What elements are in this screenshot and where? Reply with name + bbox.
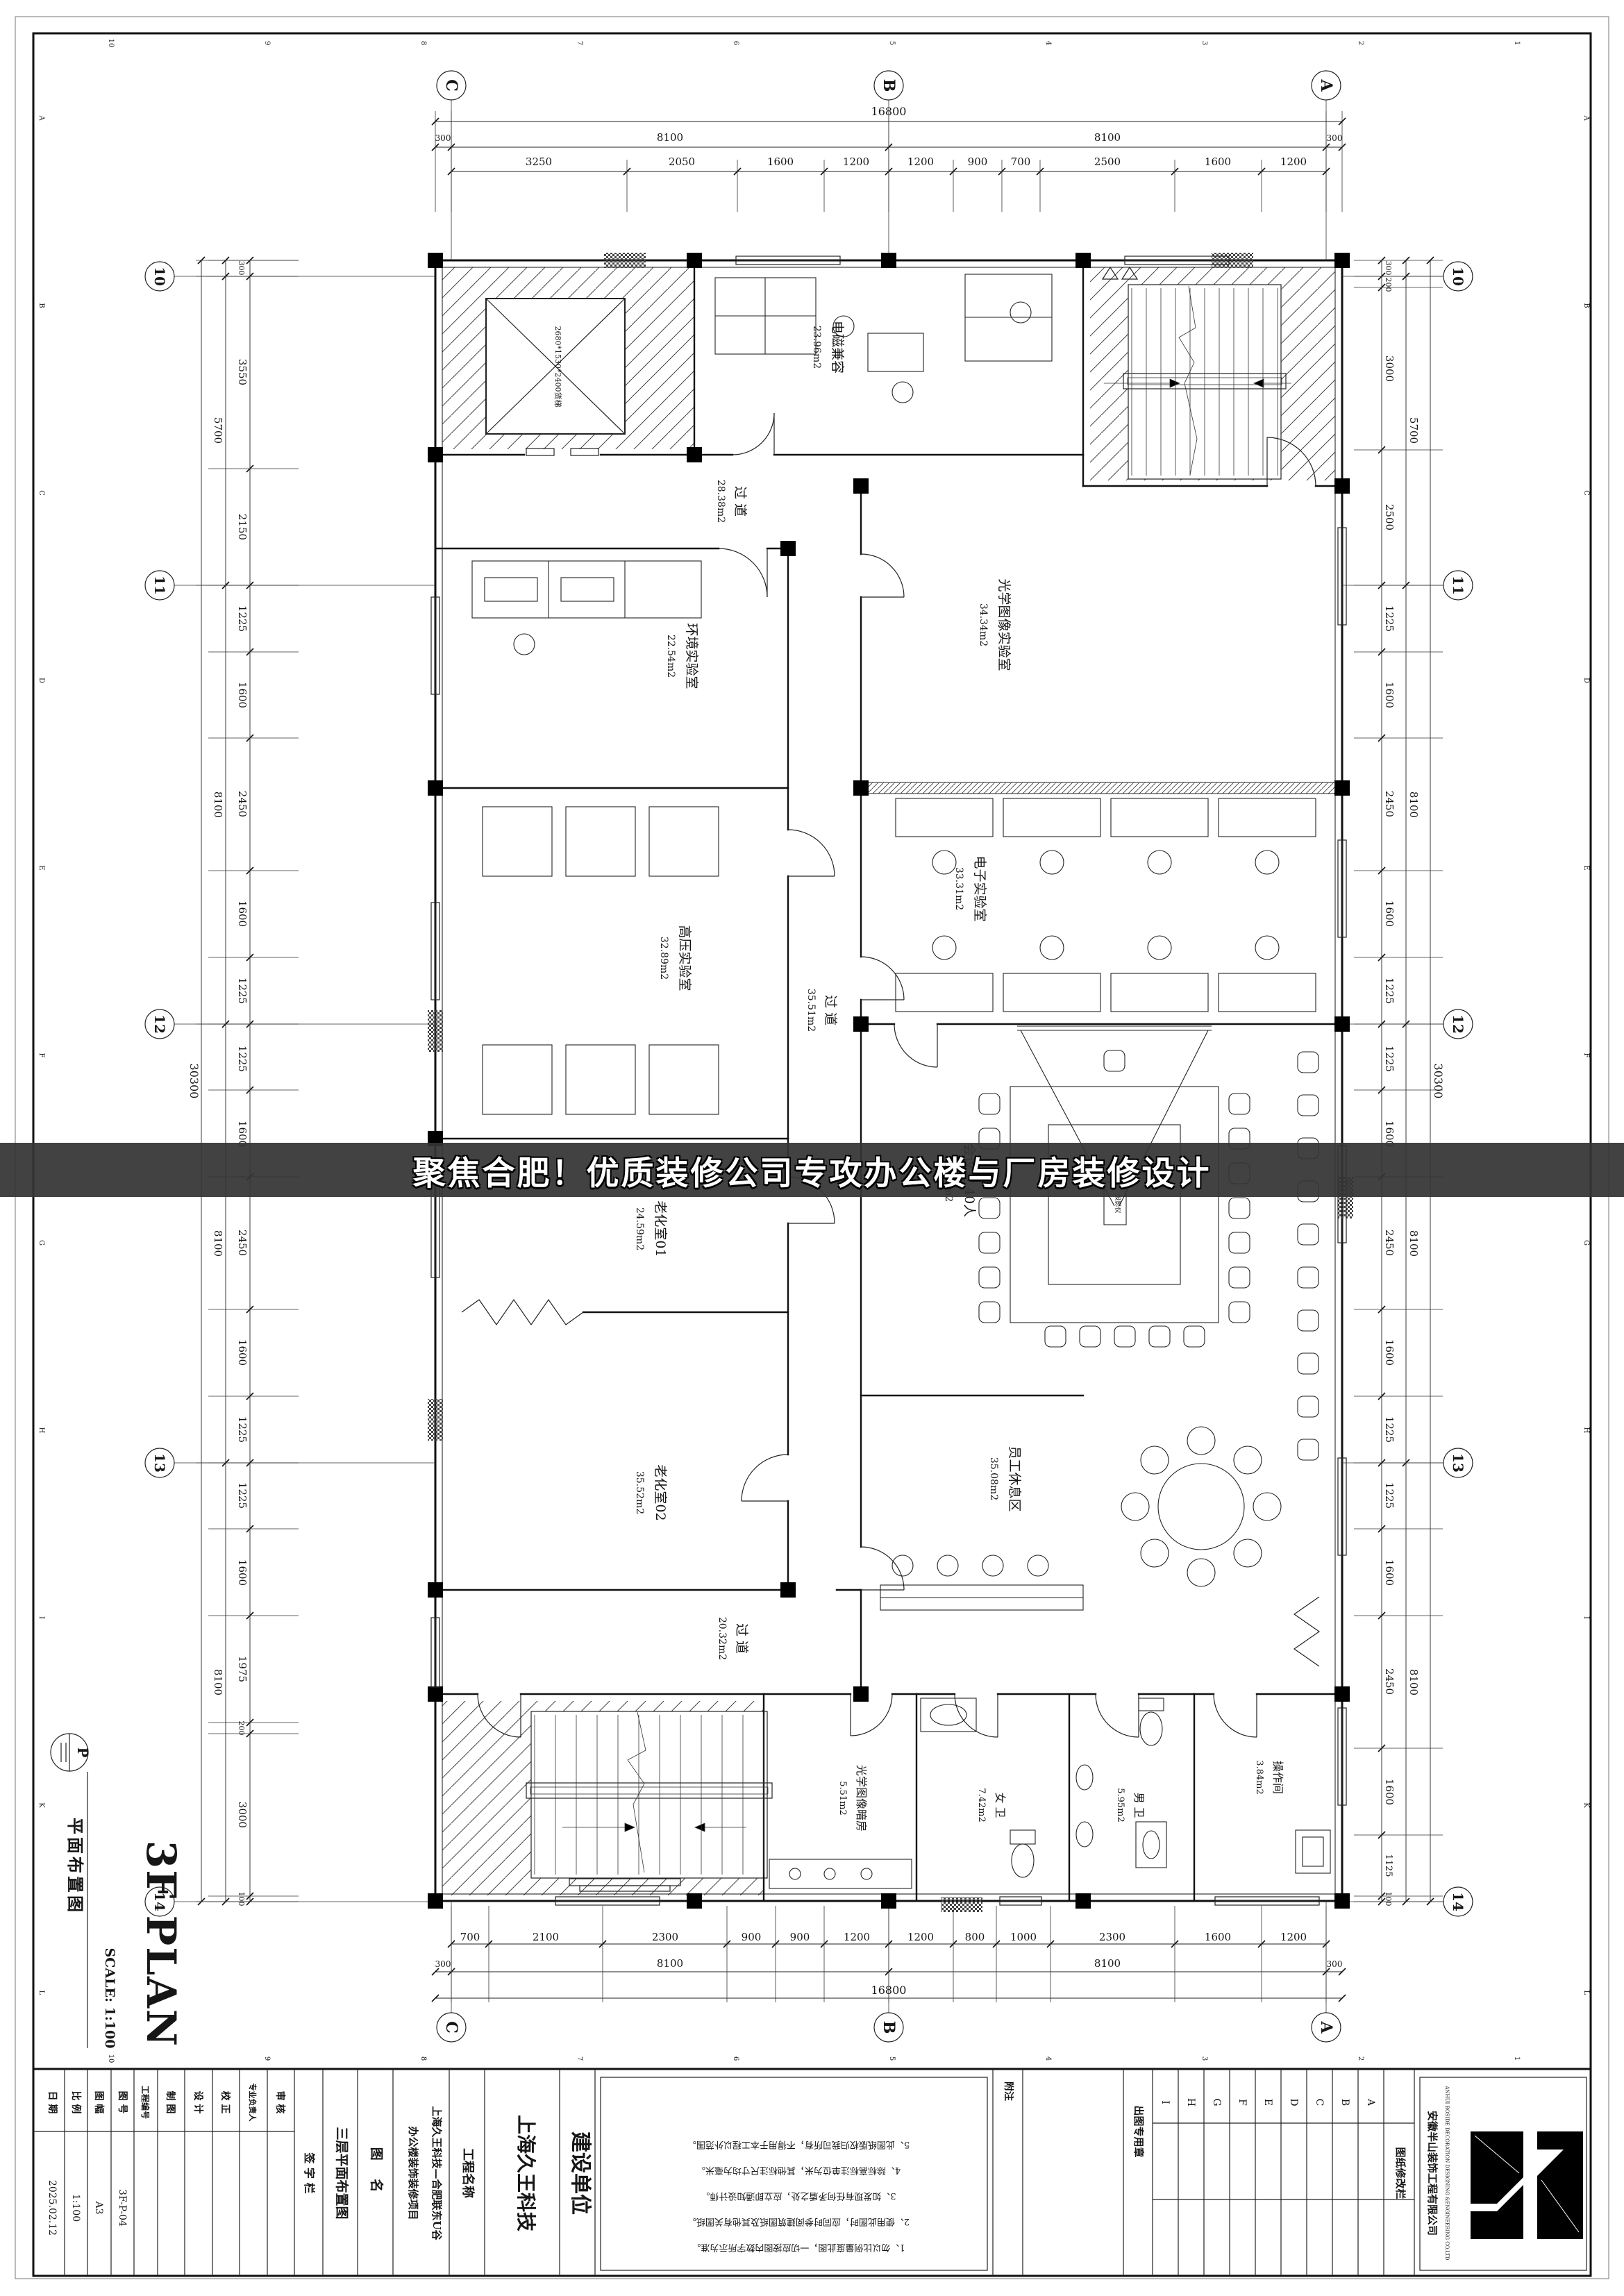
column <box>1334 780 1350 796</box>
dim-bottom-sub: 1200 <box>907 1931 934 1943</box>
zone-mark: K <box>37 1802 45 1808</box>
room-area: 34.34m2 <box>978 603 989 646</box>
dim-left-sub: 2450 <box>236 791 249 817</box>
chair <box>1298 1353 1319 1374</box>
dim-left-major: 5700 <box>212 417 224 444</box>
dim-left-sub: 3000 <box>236 1802 249 1828</box>
watermark-banner: 聚焦合肥！优质装修公司专攻办公楼与厂房装修设计 <box>0 1143 1624 1197</box>
zone-mark: 5 <box>888 41 896 45</box>
room-area: 24.59m2 <box>634 1207 645 1250</box>
zone-mark: I <box>37 1616 45 1619</box>
grid-bubble-label: 13 <box>151 1453 168 1473</box>
room-name: 光学图像实验室 <box>996 578 1012 671</box>
chair <box>1184 1326 1205 1347</box>
plan-title-en: 3F PLAN <box>137 1841 185 2047</box>
zone-mark: 8 <box>419 41 427 45</box>
dim-left-major: 8100 <box>212 791 224 818</box>
dim-left-sub: 1225 <box>236 1416 249 1443</box>
dim-right-sub: 2500 <box>1383 504 1396 530</box>
chair <box>1148 936 1171 960</box>
grid-bubble-label: 11 <box>1450 576 1466 595</box>
zone-mark: H <box>37 1427 45 1434</box>
stool <box>982 1555 1003 1576</box>
column <box>687 1893 702 1909</box>
dim-right-sub: 1600 <box>1383 1339 1396 1366</box>
room-area: 32.89m2 <box>658 937 669 980</box>
dim-left-total: 30300 <box>187 1064 201 1099</box>
zone-mark: E <box>1582 865 1590 870</box>
detail-symbol: P <box>74 1747 91 1757</box>
chair <box>1229 1267 1250 1288</box>
dim-top-major: 300 <box>1327 133 1343 143</box>
room-name: 过 道 <box>823 995 838 1025</box>
room-name: 电磁兼容 <box>830 321 845 374</box>
desk <box>1219 798 1316 837</box>
revision-letter: I <box>1160 2100 1171 2104</box>
dim-bottom-major: 300 <box>1327 1959 1343 1969</box>
room-name: 女 卫 <box>994 1792 1007 1818</box>
column <box>881 253 896 268</box>
chair <box>1045 1326 1066 1347</box>
titleblock-label: 设 计 <box>192 2091 204 2114</box>
titleblock-value: 三层平面布置图 <box>334 2127 350 2219</box>
grid-bubble-label: 10 <box>1450 267 1466 286</box>
zone-mark: F <box>37 1053 45 1058</box>
dim-bottom-sub: 800 <box>965 1931 985 1943</box>
titleblock-value: 上海久王科技—合肥联东U谷 <box>430 2106 443 2240</box>
column <box>428 447 443 462</box>
zone-mark: 10 <box>107 2054 115 2063</box>
plan-title-cn: 平面布置图 <box>65 1818 85 1915</box>
dim-left-sub: 1600 <box>236 682 249 708</box>
dim-top-sub: 1200 <box>907 156 934 168</box>
chair <box>1298 1267 1319 1288</box>
dim-bottom-sub: 2300 <box>652 1931 678 1943</box>
revision-letter: C <box>1314 2099 1325 2106</box>
company-name: 安徽半山装饰工程有限公司 <box>1426 2111 1439 2236</box>
column <box>687 253 702 268</box>
revision-letter: F <box>1237 2099 1248 2106</box>
dim-left-sub: 1975 <box>236 1656 249 1682</box>
grid-bubble-label: B <box>880 2021 898 2034</box>
titleblock-value: 上海久王科技 <box>514 2115 537 2231</box>
dim-top-sub: 900 <box>968 156 988 168</box>
column <box>428 1582 443 1598</box>
notes-line: 1、勿以比例量度此图，一切应按图内数字所示为准。 <box>692 2242 905 2253</box>
notes-line: 3、如发现有任何矛盾之处，应立即通知设计师。 <box>701 2190 896 2202</box>
zone-mark: H <box>1582 1427 1590 1434</box>
chair <box>1187 1559 1215 1586</box>
zone-mark: 2 <box>1357 2056 1364 2061</box>
equipment-label: 投影仪 <box>1114 1194 1122 1213</box>
grid-bubble-label: 12 <box>151 1014 168 1034</box>
titleblock-label: 附注 <box>1003 2081 1014 2101</box>
chair <box>1234 1539 1262 1567</box>
chair <box>1229 1302 1250 1323</box>
column <box>428 780 443 796</box>
stool <box>892 1555 913 1576</box>
column <box>428 253 443 268</box>
titleblock-label: 图 幅 <box>93 2091 105 2114</box>
dim-bottom-sub: 1200 <box>844 1931 870 1943</box>
zone-mark: 4 <box>1044 2056 1052 2061</box>
dim-top-major: 8100 <box>1094 131 1121 144</box>
dim-left-sub: 1225 <box>236 978 249 1004</box>
chair <box>1234 1446 1262 1474</box>
column <box>881 1893 896 1909</box>
chair <box>1255 850 1279 874</box>
room-area: 28.38m2 <box>715 480 726 523</box>
titleblock-value: 办公楼装饰装修项目 <box>407 2126 419 2220</box>
chair <box>1229 1198 1250 1218</box>
equipment-label: 2680*1530*2400货梯 <box>553 326 563 408</box>
revision-letter: E <box>1262 2099 1273 2106</box>
dim-left-sub: 1225 <box>236 1046 249 1072</box>
dim-left-sub: 1225 <box>236 1482 249 1509</box>
room-area: 20.32m2 <box>717 1617 728 1660</box>
dim-bottom-sub: 900 <box>790 1931 810 1943</box>
chair <box>979 1302 1000 1323</box>
hatched-areas <box>442 267 1335 1895</box>
titleblock-label: 图 号 <box>117 2091 128 2114</box>
zone-mark: A <box>37 115 45 121</box>
column <box>780 541 796 556</box>
titleblock-label: 制 图 <box>165 2091 176 2114</box>
titleblock-label: 图 名 <box>369 2147 385 2199</box>
titleblock-value: 1:100 <box>70 2194 81 2222</box>
chair <box>932 936 956 960</box>
furniture <box>472 274 1330 1888</box>
room-name: 操作间 <box>1271 1761 1284 1794</box>
revision-letter: B <box>1339 2099 1350 2106</box>
titleblock-label: 专业负责人 <box>248 2084 258 2122</box>
dim-right-sub: 2450 <box>1383 791 1396 817</box>
dim-left-sub: 3550 <box>236 359 249 385</box>
dim-left-sub: 2150 <box>236 514 249 540</box>
zone-mark: F <box>1582 1053 1590 1058</box>
round-table <box>1158 1464 1244 1550</box>
titleblock-value: 2025.02.12 <box>47 2180 58 2236</box>
column <box>853 1686 869 1702</box>
dim-left-sub: 1600 <box>236 1559 249 1586</box>
dim-bottom-sub: 900 <box>742 1931 762 1943</box>
column <box>428 1686 443 1702</box>
zone-mark: C <box>37 490 45 496</box>
chair <box>1104 1050 1125 1071</box>
column <box>1334 478 1350 494</box>
chair <box>1141 1539 1169 1567</box>
zone-mark: 3 <box>1200 2056 1208 2061</box>
zone-mark: 7 <box>576 2056 583 2061</box>
dim-right-sub: 1600 <box>1383 1559 1396 1586</box>
notes-line: 5、此图纸版权归我司所有，不得用于本工程以外范围。 <box>687 2139 910 2150</box>
dim-right-total: 30300 <box>1432 1064 1445 1099</box>
dim-right-sub: 100 <box>1384 1892 1393 1907</box>
plan-scale: SCALE: 1:100 <box>102 1948 117 2049</box>
zone-mark: 1 <box>1513 41 1521 45</box>
titleblock-label: 签 字 栏 <box>303 2152 316 2193</box>
dim-right-major: 8100 <box>1407 791 1420 818</box>
chair <box>1298 1052 1319 1073</box>
column <box>853 780 869 796</box>
column <box>1075 253 1091 268</box>
dim-left-sub: 300 <box>237 261 246 276</box>
room-area: 7.42m2 <box>976 1788 987 1822</box>
desk <box>1111 798 1208 837</box>
titleblock-value: 3F-P-04 <box>117 2189 128 2227</box>
zone-mark: L <box>1582 1991 1590 1995</box>
chair <box>1040 850 1064 874</box>
grid-bubble-label: 10 <box>151 267 168 286</box>
room-name: 高压实验室 <box>677 925 692 991</box>
zone-mark: L <box>37 1991 45 1995</box>
zone-mark: G <box>1582 1240 1590 1246</box>
zone-mark: 8 <box>419 2056 427 2061</box>
chair <box>1229 1093 1250 1114</box>
dim-left-major: 8100 <box>212 1230 224 1257</box>
column <box>687 447 702 462</box>
dim-top-sub: 1600 <box>1205 156 1231 168</box>
dim-bottom-sub: 1000 <box>1010 1931 1037 1943</box>
drawing-sheet: 聚焦合肥！优质装修公司专攻办公楼与厂房装修设计 <box>0 0 1624 2296</box>
chair <box>1229 1232 1250 1253</box>
dim-left-sub: 100 <box>237 1892 246 1907</box>
titleblock-label: 工程名称 <box>460 2148 476 2198</box>
dim-bottom-sub: 1600 <box>1205 1931 1231 1943</box>
notes-line: 4、除标高标注单位为米，其他标注尺寸均为毫米。 <box>696 2165 901 2176</box>
dim-left-sub: 200 <box>237 1721 246 1736</box>
revision-letter: G <box>1211 2098 1222 2106</box>
grid-bubble-label: 14 <box>1450 1892 1466 1911</box>
chair <box>1298 1439 1319 1460</box>
zone-mark: G <box>37 1240 45 1246</box>
dim-right-sub: 300 <box>1384 261 1393 276</box>
room-name: 员工休息区 <box>1007 1446 1022 1511</box>
room-area: 3.84m2 <box>1254 1760 1264 1795</box>
dim-right-major: 8100 <box>1407 1669 1420 1695</box>
dim-right-sub: 1225 <box>1383 1482 1396 1509</box>
chair <box>1298 1224 1319 1245</box>
column <box>780 1582 796 1598</box>
zone-mark: C <box>1582 490 1590 496</box>
chair <box>1298 1310 1319 1331</box>
room-name: 老化室01 <box>653 1200 668 1257</box>
column <box>1334 253 1350 268</box>
d im-bottom-sub: 2300 <box>1099 1931 1125 1943</box>
dim-right-sub: 1225 <box>1383 978 1396 1004</box>
grid-bubble-label: A <box>1317 2020 1335 2034</box>
revision-letter: A <box>1365 2098 1376 2106</box>
titleblock-value: A3 <box>93 2200 104 2214</box>
zone-mark: A <box>1582 115 1590 121</box>
dim-right-major: 5700 <box>1407 417 1420 444</box>
dim-bottom-major: 300 <box>435 1959 451 1969</box>
revision-letter: H <box>1185 2098 1196 2106</box>
chair <box>1121 1493 1149 1520</box>
zone-mark: K <box>1582 1802 1590 1808</box>
dim-right-sub: 2450 <box>1383 1230 1396 1256</box>
desk <box>896 798 993 837</box>
chair <box>979 1198 1000 1218</box>
stool <box>1028 1555 1048 1576</box>
dim-bottom-major: 8100 <box>657 1957 683 1970</box>
dim-left-sub: 1600 <box>236 900 249 927</box>
room-area: 35.51m2 <box>805 989 817 1032</box>
zone-mark: E <box>37 865 45 870</box>
dim-top-sub: 1200 <box>1280 156 1307 168</box>
zone-mark: D <box>1582 678 1590 683</box>
accordion-door <box>462 1300 583 1325</box>
notes-line: 2、使用此图时，应同时参阅建筑图纸及其他有关图纸。 <box>687 2216 910 2227</box>
walls <box>435 260 1342 1901</box>
dim-top-sub: 2050 <box>669 156 695 168</box>
company-name-en: ANHUI BOSIDE DECORATION DESIGNING &ENGIN… <box>1444 2085 1450 2260</box>
dim-right-sub: 1225 <box>1383 1046 1396 1072</box>
chair <box>1149 1326 1170 1347</box>
dim-top-sub: 3250 <box>526 156 552 168</box>
chair <box>979 1267 1000 1288</box>
titleblock-label: 校 正 <box>219 2091 231 2114</box>
dim-right-sub: 1600 <box>1383 1779 1396 1805</box>
chair <box>932 850 956 874</box>
dim-bottom-sub: 1200 <box>1280 1931 1307 1943</box>
room-area: 23.96m2 <box>811 326 822 369</box>
wall-blocks <box>428 253 1353 1912</box>
dim-left-sub: 1600 <box>236 1339 249 1366</box>
dim-top-sub: 700 <box>1011 156 1031 168</box>
zone-mark: 5 <box>888 2056 896 2061</box>
chair <box>1141 1446 1169 1474</box>
zone-mark: 9 <box>263 41 271 45</box>
room-area: 33.31m2 <box>953 867 964 910</box>
room-area: 35.08m2 <box>988 1457 999 1500</box>
dim-top-sub: 2500 <box>1094 156 1121 168</box>
chair <box>1298 1396 1319 1417</box>
room-name: 电子实验室 <box>972 855 987 921</box>
zone-mark: D <box>37 678 45 683</box>
room-area: 5.95m2 <box>1115 1788 1125 1822</box>
revision-letter: D <box>1288 2098 1299 2106</box>
room-area: 5.51m2 <box>837 1781 848 1816</box>
dim-right-sub: 1225 <box>1383 1416 1396 1443</box>
dim-bottom-major: 8100 <box>1094 1957 1121 1970</box>
zone-mark: 3 <box>1200 41 1208 45</box>
grid-bubble-label: A <box>1317 78 1335 92</box>
titleblock-label: 工程编号 <box>140 2086 151 2119</box>
dim-left-sub: 2450 <box>236 1230 249 1256</box>
dim-right-major: 8100 <box>1407 1230 1420 1257</box>
dim-bottom-sub: 700 <box>460 1931 480 1943</box>
dim-left-sub: 1225 <box>236 605 249 632</box>
zone-mark: 4 <box>1044 41 1052 45</box>
dim-top-total: 16800 <box>871 105 907 118</box>
column <box>1334 1016 1350 1032</box>
grid-bubble-label: C <box>442 79 460 92</box>
doors <box>462 413 1319 1737</box>
zone-mark: B <box>37 303 45 308</box>
dim-right-sub: 1600 <box>1383 682 1396 708</box>
grid-bubble-label: C <box>442 2021 460 2034</box>
dim-left-major: 8100 <box>212 1669 224 1695</box>
dim-right-sub: 1225 <box>1383 605 1396 632</box>
column <box>428 1893 443 1909</box>
chair <box>1040 936 1064 960</box>
titleblock-label: 出图专用章 <box>1132 2105 1145 2157</box>
chair <box>1298 1095 1319 1116</box>
dim-top-major: 300 <box>435 133 451 143</box>
desk <box>1219 973 1316 1012</box>
column <box>1075 1893 1091 1909</box>
room-name: 老化室02 <box>653 1464 668 1520</box>
titleblock-label: 图纸修改栏 <box>1394 2147 1407 2199</box>
room-name: 过 道 <box>733 486 748 517</box>
desk <box>1003 798 1100 837</box>
dim-top-major: 8100 <box>657 131 683 144</box>
chair <box>979 1093 1000 1114</box>
dim-top-sub: 1200 <box>843 156 869 168</box>
desk <box>1003 973 1100 1012</box>
dim-bottom-sub: 2100 <box>533 1931 559 1943</box>
grid-bubble-label: 12 <box>1450 1014 1466 1034</box>
zone-mark: 6 <box>732 41 739 45</box>
zone-mark: I <box>1582 1616 1590 1619</box>
dim-right-sub: 200 <box>1384 278 1393 292</box>
desk <box>896 973 993 1012</box>
column <box>1334 1893 1350 1909</box>
chair <box>1253 1493 1281 1520</box>
column <box>853 1016 869 1032</box>
chair <box>979 1232 1000 1253</box>
titleblock-label: 比 例 <box>70 2091 82 2114</box>
titleblock-label: 建设单位 <box>568 2131 592 2215</box>
room-name: 过 道 <box>734 1623 749 1654</box>
dim-bottom-total: 16800 <box>871 1984 907 1997</box>
zone-mark: 2 <box>1357 41 1364 45</box>
dim-right-sub: 1600 <box>1383 900 1396 927</box>
radiator-zigzag <box>1294 1597 1319 1666</box>
chair <box>1187 1427 1215 1455</box>
room-name: 男 卫 <box>1132 1792 1146 1818</box>
desk <box>1111 973 1208 1012</box>
zone-mark: 7 <box>576 41 583 45</box>
company-logo <box>1471 2131 1583 2239</box>
grid-bubble-label: 11 <box>151 576 168 595</box>
chair <box>1080 1326 1100 1347</box>
chair <box>1114 1326 1135 1347</box>
grid-bubble-label: 13 <box>1450 1453 1466 1473</box>
stool <box>937 1555 958 1576</box>
titleblock-label: 日 期 <box>47 2091 58 2114</box>
room-area: 22.54m2 <box>665 635 676 678</box>
hatched-wall-band <box>868 782 1335 794</box>
dim-top-sub: 1600 <box>767 156 794 168</box>
grid-bubble-label: B <box>880 79 898 92</box>
dim-right-sub: 3000 <box>1383 355 1396 382</box>
titleblock-label: 审 核 <box>274 2091 286 2114</box>
chair <box>1255 936 1279 960</box>
room-area: 35.52m2 <box>634 1471 645 1514</box>
column <box>1334 1686 1350 1702</box>
zone-mark: 9 <box>263 2056 271 2061</box>
dim-right-sub: 2450 <box>1383 1668 1396 1695</box>
chair <box>1148 850 1171 874</box>
watermark-text: 聚焦合肥！优质装修公司专攻办公楼与厂房装修设计 <box>413 1146 1212 1194</box>
zone-mark: B <box>1582 303 1590 308</box>
room-name: 光学图像暗房 <box>855 1765 868 1832</box>
room-name: 环境实验室 <box>684 623 699 689</box>
zone-mark: 6 <box>732 2056 739 2061</box>
zone-mark: 10 <box>107 39 115 48</box>
